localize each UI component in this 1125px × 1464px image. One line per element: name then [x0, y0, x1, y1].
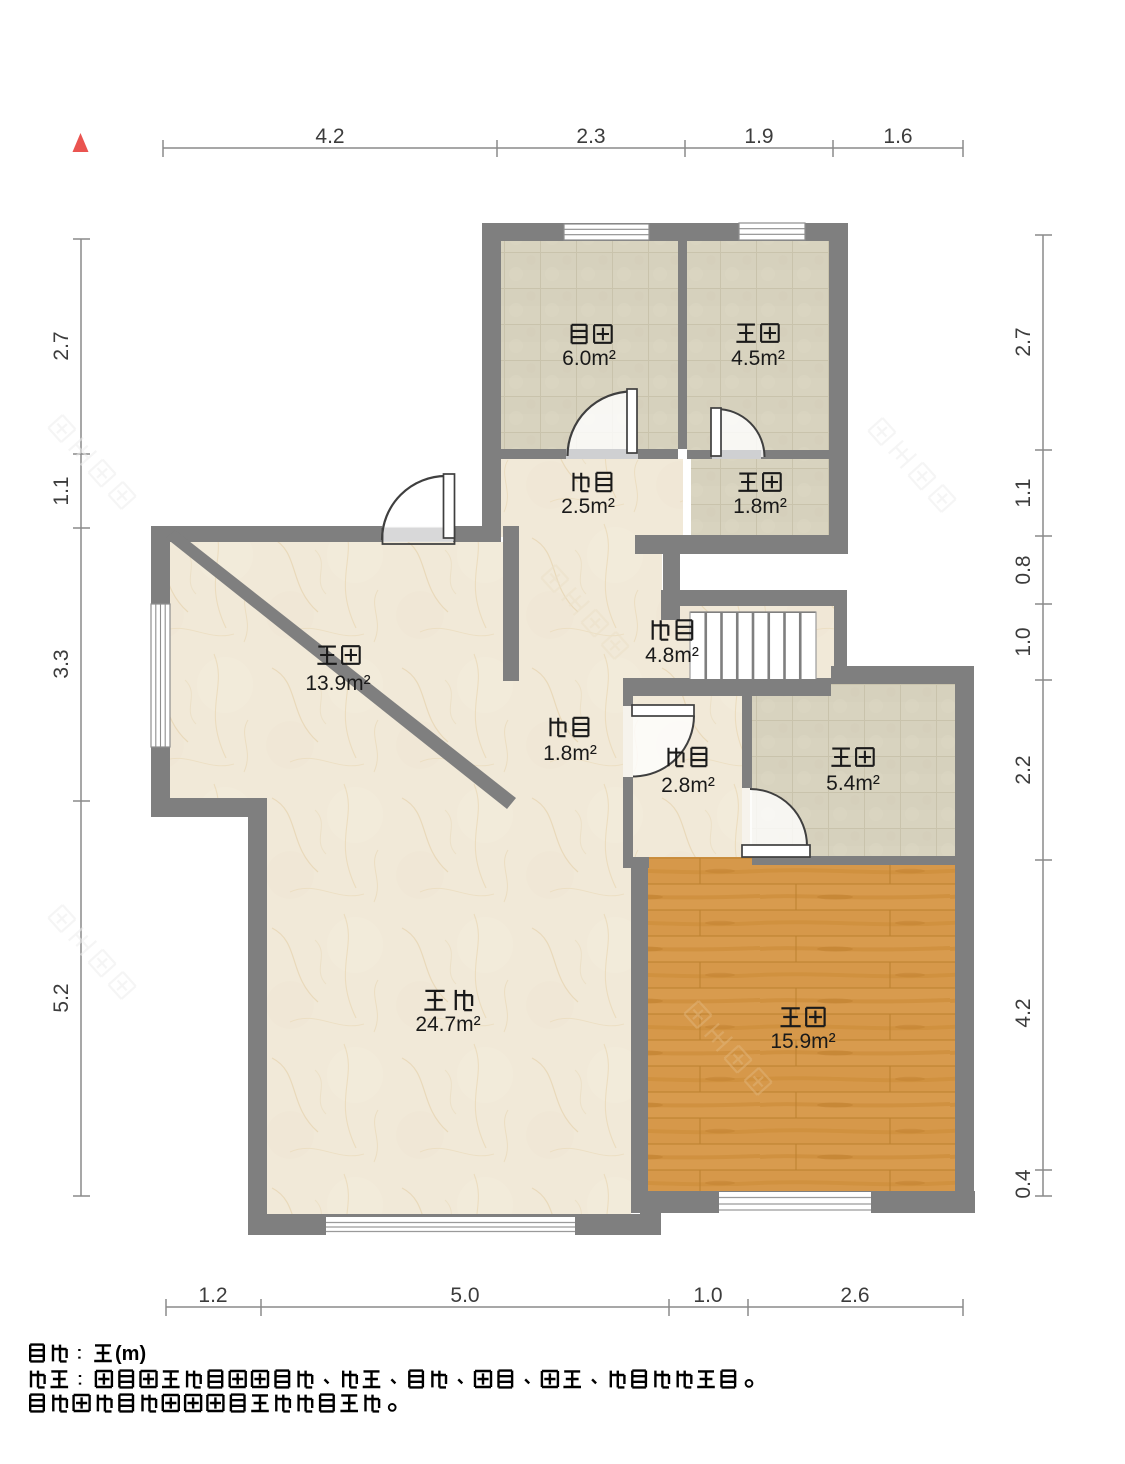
- svg-text:1.6: 1.6: [883, 125, 912, 148]
- svg-text:5.4m²: 5.4m²: [826, 772, 880, 795]
- svg-text:1.0: 1.0: [1012, 627, 1035, 656]
- svg-text:2.3: 2.3: [576, 125, 605, 148]
- svg-text:2.5m²: 2.5m²: [561, 495, 615, 518]
- svg-text:13.9m²: 13.9m²: [305, 672, 370, 695]
- svg-text:5.0: 5.0: [450, 1284, 479, 1307]
- svg-text:1.1: 1.1: [1012, 478, 1035, 507]
- svg-text:24.7m²: 24.7m²: [415, 1013, 480, 1036]
- svg-text:1.2: 1.2: [198, 1284, 227, 1307]
- svg-text:1.9: 1.9: [744, 125, 773, 148]
- svg-text:0.8: 0.8: [1012, 555, 1035, 584]
- svg-text:2.7: 2.7: [1012, 327, 1035, 356]
- svg-text:4.8m²: 4.8m²: [645, 644, 699, 667]
- svg-text:0.4: 0.4: [1012, 1169, 1035, 1199]
- svg-text:2.6: 2.6: [840, 1284, 869, 1307]
- svg-text:1.8m²: 1.8m²: [543, 742, 597, 765]
- svg-text:(m): (m): [115, 1343, 146, 1365]
- svg-text:6.0m²: 6.0m²: [562, 347, 616, 370]
- svg-text:5.2: 5.2: [50, 983, 73, 1012]
- svg-text:3.3: 3.3: [50, 649, 73, 678]
- svg-text:2.7: 2.7: [50, 331, 73, 360]
- svg-text:1.1: 1.1: [50, 476, 73, 505]
- svg-text:15.9m²: 15.9m²: [770, 1030, 835, 1053]
- svg-text:4.2: 4.2: [1012, 998, 1035, 1027]
- svg-text:1.0: 1.0: [693, 1284, 722, 1307]
- svg-text:4.5m²: 4.5m²: [731, 347, 785, 370]
- svg-text:4.2: 4.2: [315, 125, 344, 148]
- svg-text:1.8m²: 1.8m²: [733, 495, 787, 518]
- svg-text:2.8m²: 2.8m²: [661, 774, 715, 797]
- svg-text:2.2: 2.2: [1012, 755, 1035, 784]
